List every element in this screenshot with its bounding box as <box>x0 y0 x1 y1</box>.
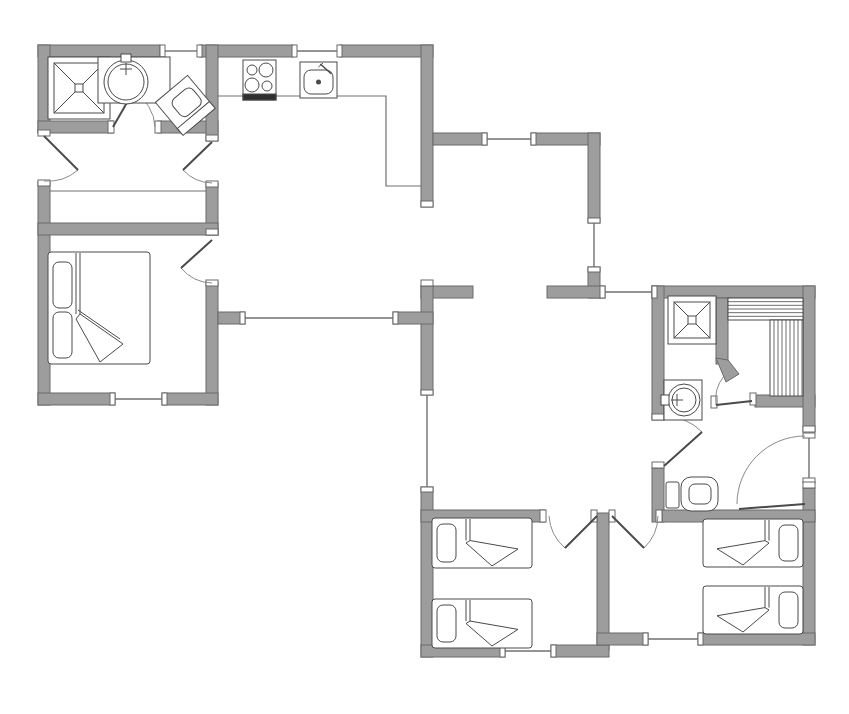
wall <box>597 513 609 650</box>
window-cap <box>421 487 433 492</box>
wall <box>393 312 433 324</box>
window-cap <box>110 393 115 405</box>
shower-drain <box>75 84 83 92</box>
wall <box>206 45 218 141</box>
sauna-bench-side <box>770 320 803 396</box>
wall <box>206 282 218 405</box>
wall <box>433 133 487 145</box>
window-cap <box>421 390 433 395</box>
toilet-bowl <box>681 477 718 511</box>
basin-utility <box>98 54 170 104</box>
window-cap <box>698 633 703 645</box>
door-cap <box>652 462 664 468</box>
wall <box>803 286 815 432</box>
toilet-tank <box>666 482 679 508</box>
wall <box>698 633 815 645</box>
wall <box>588 133 600 223</box>
single-bed-3 <box>703 519 803 567</box>
door-cap <box>155 121 161 133</box>
door-cap <box>421 280 433 286</box>
door-cap <box>206 229 218 235</box>
basin-faucet <box>661 395 669 405</box>
shower-bathroom <box>668 296 716 344</box>
wall <box>421 45 433 207</box>
window-cap <box>588 267 600 272</box>
window-cap <box>643 633 648 645</box>
window-cap <box>482 133 487 145</box>
door-cap <box>421 201 433 207</box>
wall <box>340 45 433 57</box>
window-cap <box>588 218 600 223</box>
window-cap <box>600 286 605 298</box>
window-cap <box>197 45 202 57</box>
wall <box>597 633 648 645</box>
pillow <box>53 262 72 308</box>
window-cap <box>803 433 815 438</box>
basin-bathroom <box>661 380 702 420</box>
single-bed-4 <box>703 586 803 634</box>
stove <box>243 60 276 100</box>
door-cap <box>652 414 664 420</box>
window-cap <box>531 133 536 145</box>
toilet-wc <box>666 477 718 511</box>
door-cap <box>540 510 546 522</box>
sauna-bench-top <box>728 298 803 320</box>
door-cap <box>656 510 662 522</box>
kitchen-sink <box>300 62 337 98</box>
window-cap <box>652 286 657 298</box>
basin-faucet <box>121 54 131 62</box>
door-cap <box>206 181 218 187</box>
wall <box>38 223 218 235</box>
single-bed-2 <box>432 599 532 648</box>
door-cap <box>750 393 756 405</box>
stove-panel <box>243 94 276 100</box>
shower-drain <box>688 316 696 324</box>
wall <box>38 393 115 405</box>
single-bed-1 <box>432 518 532 568</box>
pillow <box>437 524 456 562</box>
window-cap <box>240 312 245 324</box>
wall <box>421 286 433 395</box>
window-cap <box>160 45 165 57</box>
window-cap <box>393 312 398 324</box>
pillow <box>437 605 456 642</box>
wall <box>38 45 160 57</box>
double-bed <box>48 252 150 364</box>
door-cap <box>803 426 815 432</box>
door-cap <box>803 482 815 488</box>
window-cap <box>162 393 167 405</box>
sink-drain <box>316 80 321 85</box>
window-cap <box>292 45 297 57</box>
window-cap <box>337 45 342 57</box>
window-cap <box>551 645 556 657</box>
floor-plan-page <box>0 0 849 714</box>
wall <box>547 286 605 298</box>
door-cap <box>206 135 218 141</box>
door-cap <box>38 130 50 136</box>
pillow <box>779 592 798 628</box>
floor-plan-canvas <box>0 0 849 714</box>
wall <box>551 645 609 657</box>
wall <box>162 393 218 405</box>
pillow <box>53 312 72 358</box>
pillow <box>779 525 798 561</box>
wall <box>716 298 728 364</box>
